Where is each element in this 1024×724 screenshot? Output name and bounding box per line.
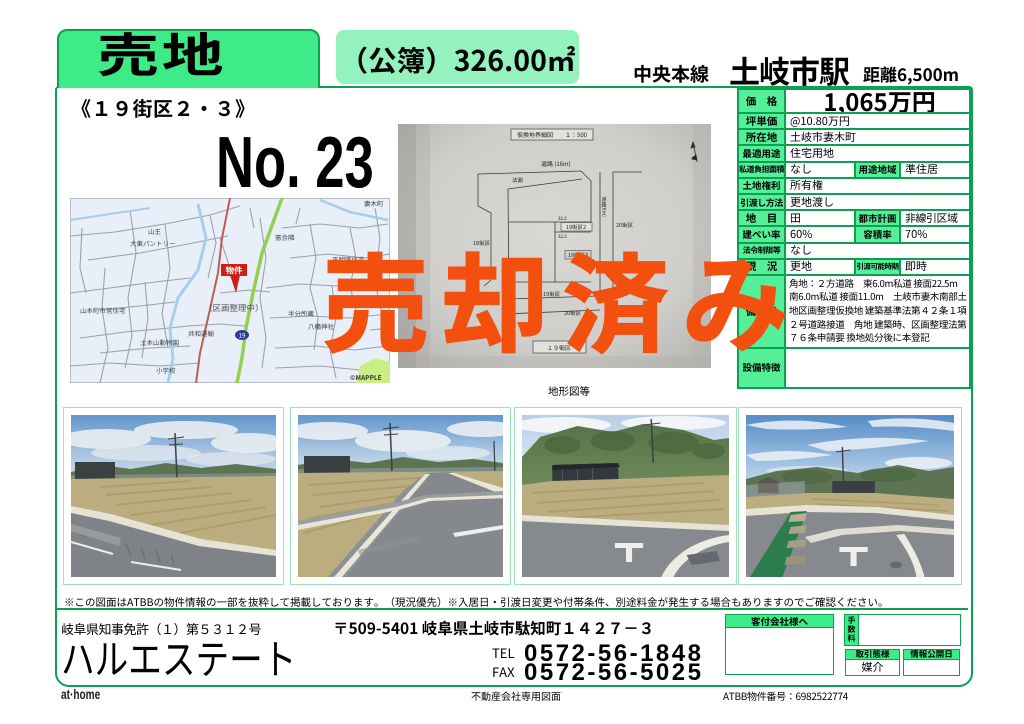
svg-text:半分所蔵: 半分所蔵	[288, 308, 315, 318]
svg-text:道路(6m): 道路(6m)	[601, 196, 608, 217]
svg-text:共和運輸: 共和運輸	[188, 328, 215, 338]
svg-text:大東パントリー: 大東パントリー	[130, 238, 176, 248]
svg-text:妻木町: 妻木町	[364, 198, 384, 208]
svg-text:憲合隣: 憲合隣	[275, 232, 295, 242]
svg-text:（区画整理中）: （区画整理中）	[204, 302, 264, 314]
svg-text:道路 (16m): 道路 (16m)	[541, 159, 571, 168]
svg-text:山王: 山王	[148, 226, 162, 236]
svg-text:物件: 物件	[225, 265, 243, 277]
svg-text:仮換地界細図 １：500: 仮換地界細図 １：500	[517, 130, 588, 139]
svg-text:法面: 法面	[512, 176, 524, 184]
svg-text:19: 19	[239, 331, 246, 340]
svg-text:山本町市営住宅: 山本町市営住宅	[80, 305, 126, 315]
svg-text:小学校: 小学校	[156, 365, 176, 375]
svg-text:土本山動物園: 土本山動物園	[140, 337, 179, 347]
